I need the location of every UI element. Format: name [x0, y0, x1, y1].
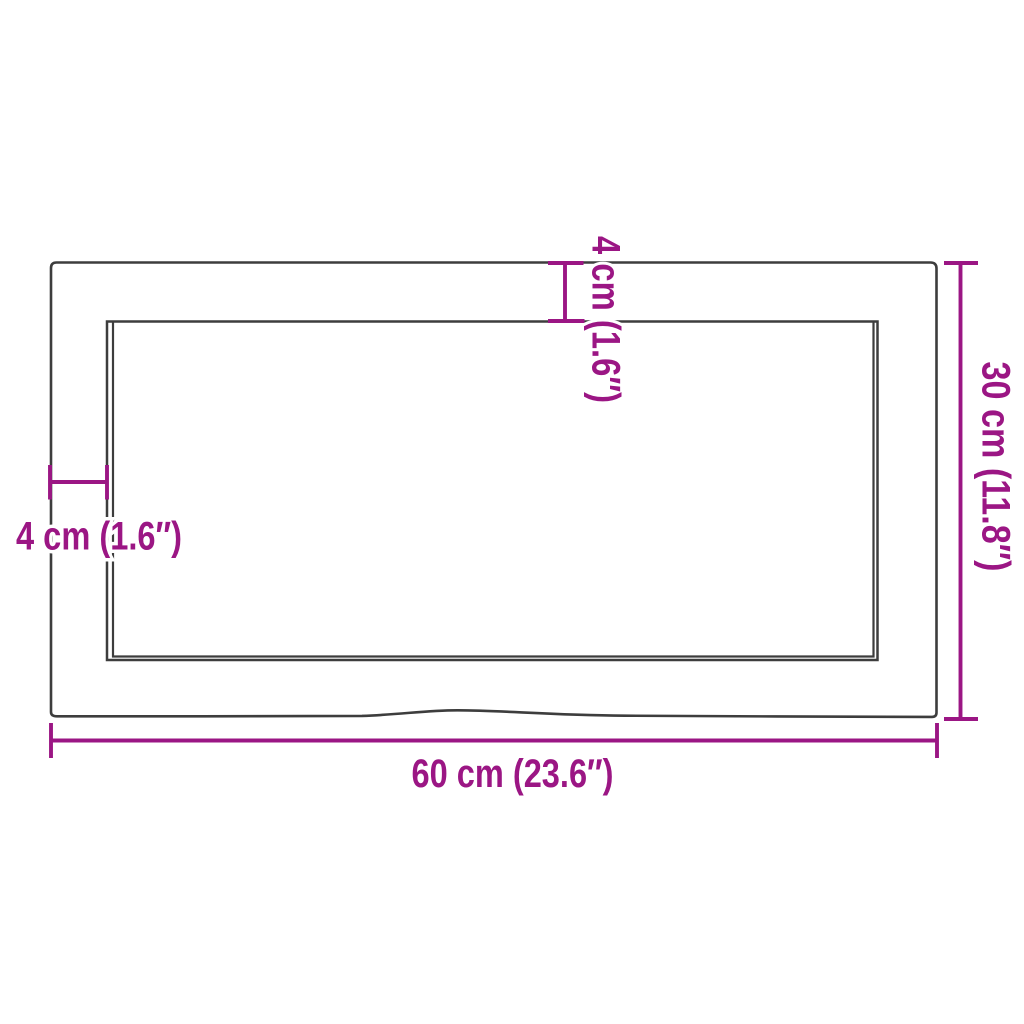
svg-text:4 cm (1.6″): 4 cm (1.6″) [16, 515, 182, 559]
svg-text:30 cm (11.8″): 30 cm (11.8″) [974, 362, 1018, 572]
svg-text:60 cm (23.6″): 60 cm (23.6″) [412, 752, 614, 796]
svg-text:4 cm (1.6″): 4 cm (1.6″) [584, 236, 628, 403]
